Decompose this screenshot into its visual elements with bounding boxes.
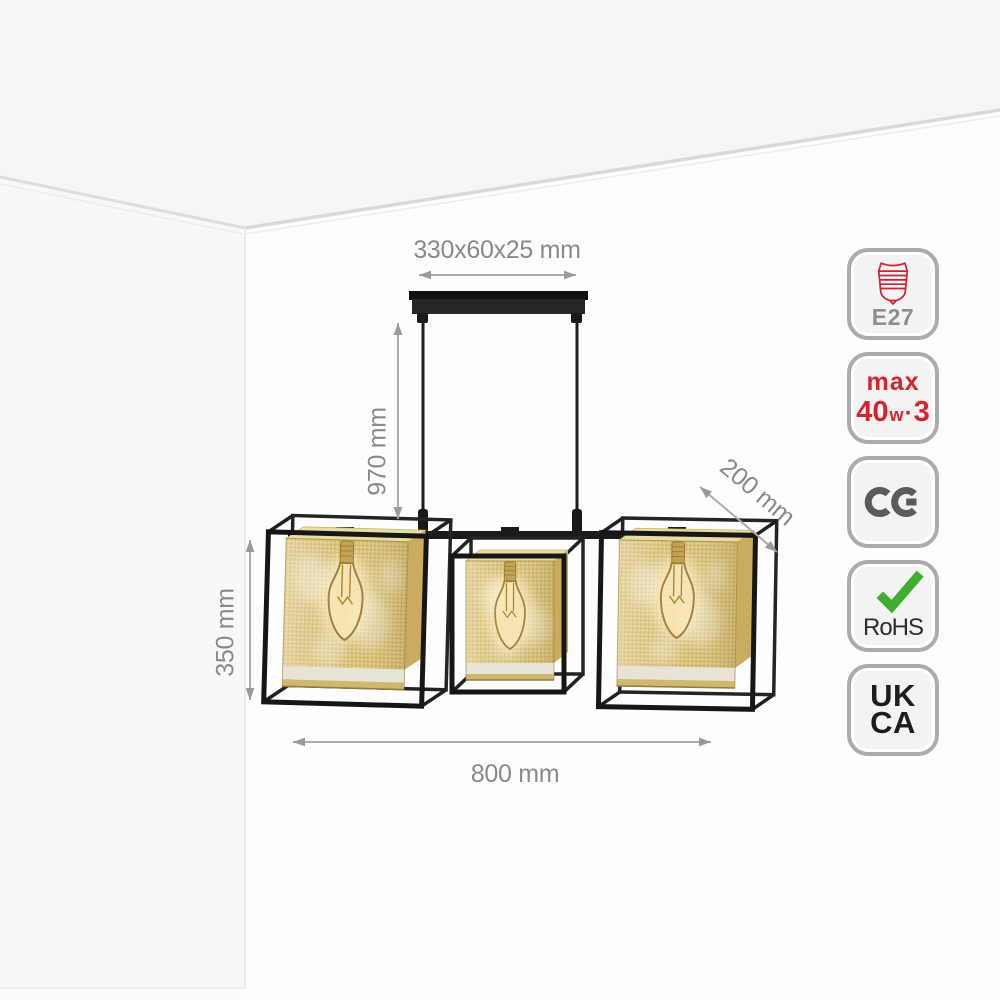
drop-dimension-label: 970 mm <box>364 392 393 512</box>
left-floor-strip <box>0 988 245 1000</box>
certification-badges: E27 max 40w·3 CE RoHS UK CA <box>847 248 939 756</box>
width-dimension-label: 800 mm <box>425 760 605 789</box>
cage-middle <box>452 538 583 692</box>
shade-left <box>282 526 425 690</box>
ce-mark-icon <box>860 483 926 521</box>
e27-label: E27 <box>872 304 914 331</box>
badge-ce: CE <box>847 456 939 548</box>
max-wattage-value: 40w·3 <box>856 398 929 427</box>
rohs-label: RoHS <box>851 614 935 642</box>
cage-left <box>264 515 451 707</box>
ukca-line2: CA <box>870 710 916 737</box>
badge-max-wattage: max 40w·3 <box>847 352 939 444</box>
shade-right <box>617 528 754 688</box>
canopy-dimension-label: 330x60x25 mm <box>387 236 607 265</box>
max-wattage-prefix: max <box>866 370 919 395</box>
badge-e27: E27 <box>847 248 939 340</box>
shade-height-dimension-label: 350 mm <box>212 573 241 693</box>
badge-ukca: UK CA <box>847 664 939 756</box>
shade-middle <box>466 550 568 680</box>
e27-socket-icon <box>867 260 919 306</box>
left-wall <box>0 177 245 988</box>
badge-rohs: RoHS <box>847 560 939 652</box>
checkmark-icon <box>871 570 929 614</box>
